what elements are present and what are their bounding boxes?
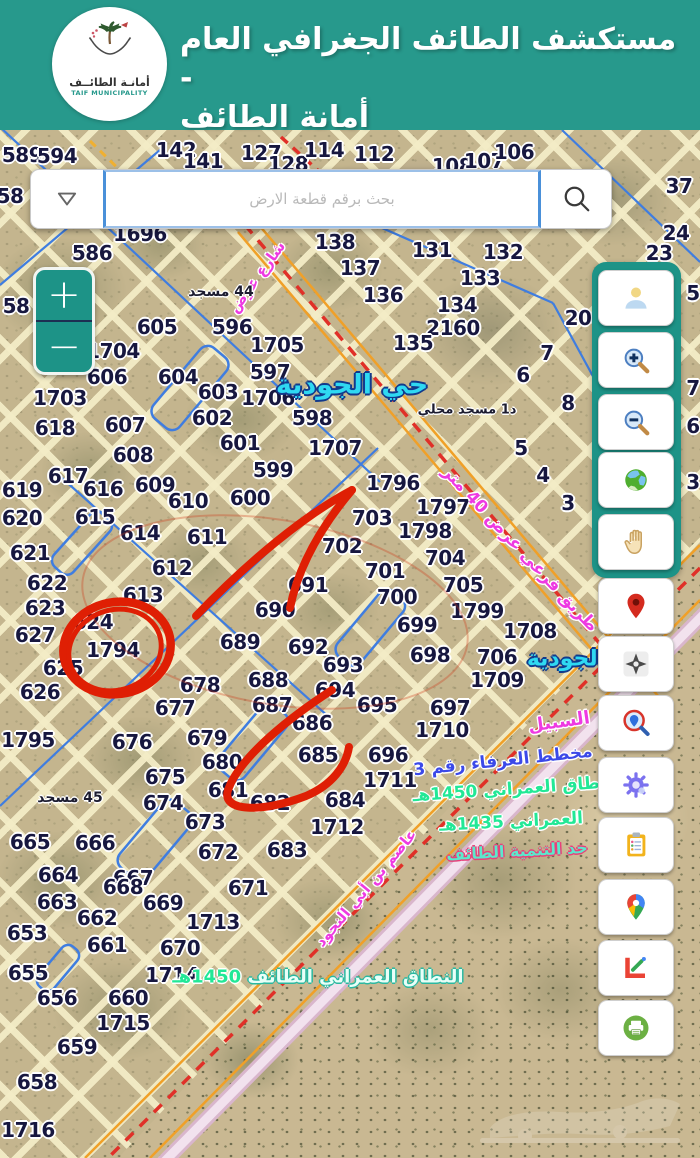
hand-icon [621, 527, 651, 557]
toolbar-button-basemap-globe[interactable] [598, 452, 674, 508]
toolbar-button-pan-tool[interactable] [598, 514, 674, 570]
toolbar-button-settings[interactable] [598, 757, 674, 813]
toolbar-button-google-maps[interactable] [598, 879, 674, 935]
search-submit[interactable] [543, 170, 611, 228]
toolbar-button-drop-marker[interactable] [598, 578, 674, 634]
gear-icon [621, 770, 651, 800]
measure-icon [621, 953, 651, 983]
toolbar-button-report-clipboard[interactable] [598, 817, 674, 873]
magnifier-pin-icon [621, 708, 651, 738]
magnifier-plus-icon [621, 345, 651, 375]
urban-boundary-label: النطاق العمراني الطائف 1450هـ [172, 967, 463, 988]
toolbar-button-measure-draw[interactable] [598, 940, 674, 996]
person-icon [621, 283, 651, 313]
gmaps-pin-icon [621, 892, 651, 922]
toolbar-button-print[interactable] [598, 1000, 674, 1056]
search-type-dropdown[interactable] [31, 170, 103, 228]
printer-icon [621, 1013, 651, 1043]
toolbar-button-zoom-in-tool[interactable] [598, 332, 674, 388]
toolbar-button-user-account[interactable] [598, 270, 674, 326]
search-input[interactable] [103, 170, 541, 228]
zoom-out-button[interactable]: − [36, 322, 92, 372]
zoom-in-button[interactable]: + [36, 270, 92, 322]
zoom-control: + − [33, 267, 95, 375]
watermark [470, 1088, 695, 1150]
toolbar-button-search-location[interactable] [598, 695, 674, 751]
toolbar-button-zoom-out-tool[interactable] [598, 394, 674, 450]
logo-arabic-name: أمانـة الطائــف [69, 76, 150, 89]
urban-boundary-text: النطاق العمراني الطائف [247, 967, 463, 988]
magnifier-minus-icon [621, 407, 651, 437]
search-icon [562, 184, 592, 214]
app-window: 5895941421411271281141121081071063724235… [0, 0, 700, 1158]
toolbar-button-locate-me[interactable] [598, 636, 674, 692]
urban-boundary-year: 1450هـ [172, 967, 241, 988]
globe-icon [621, 465, 651, 495]
logo-english-name: TAIF MUNICIPALITY [71, 89, 148, 97]
chevron-down-icon [54, 186, 80, 212]
clipboard-icon [621, 830, 651, 860]
red-pin-icon [621, 591, 651, 621]
app-header: أمانـة الطائــف TAIF MUNICIPALITY مستكشف… [0, 0, 700, 130]
palm-swords-emblem [80, 17, 140, 75]
crosshair-icon [621, 649, 651, 679]
page-title: مستكشف الطائف الجغرافي العام - أمانة الط… [180, 20, 692, 137]
municipality-logo: أمانـة الطائــف TAIF MUNICIPALITY [52, 7, 167, 121]
parcel-search-bar [30, 169, 612, 229]
